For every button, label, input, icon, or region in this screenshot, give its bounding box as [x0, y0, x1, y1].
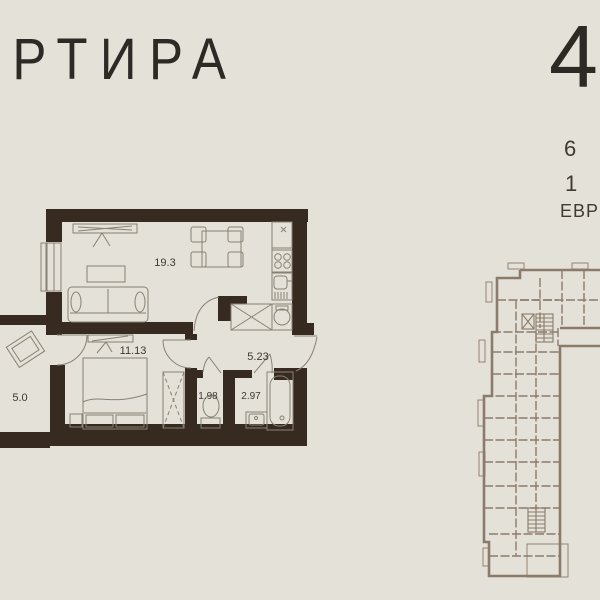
stair-core-lower — [528, 508, 545, 532]
wall-loggia-top — [0, 315, 62, 325]
fridge — [272, 222, 292, 248]
bed — [83, 358, 147, 429]
hall-closet — [231, 304, 292, 330]
wall-top — [46, 209, 308, 222]
building-interior-walls — [484, 270, 600, 556]
floor-plan-canvas: 19.3 11.13 5.23 5.0 1.98 2.97 — [0, 0, 600, 600]
door-entrance — [294, 336, 317, 371]
room-label-hallway: 5.23 — [247, 351, 268, 363]
sofa — [68, 287, 148, 322]
loggia-armchair — [6, 331, 44, 367]
dining-set — [191, 227, 243, 267]
coffee-table — [87, 266, 125, 282]
room-label-bedroom: 11.13 — [120, 345, 147, 357]
room-label-wc: 1.98 — [198, 391, 218, 402]
wall-wc-bath-divider — [223, 370, 235, 428]
wall-loggia-bedroom — [50, 365, 65, 432]
door-bedroom — [163, 340, 191, 368]
wall-wc-top — [185, 370, 203, 378]
wardrobe — [163, 372, 184, 428]
wall-living-bedroom — [55, 322, 193, 334]
kitchen-sink — [272, 273, 292, 300]
unit-outline — [478, 263, 588, 577]
wall-bedroom-hall-stub — [185, 334, 197, 340]
wall-right-kitchen — [292, 209, 307, 323]
room-label-living-kitchen: 19.3 — [154, 257, 175, 269]
building-outline — [484, 270, 600, 576]
door-wc — [203, 357, 221, 373]
apartment-plan: 19.3 11.13 5.23 5.0 1.98 2.97 — [0, 209, 317, 448]
wall-left-upper — [46, 209, 62, 242]
tv-console-living — [73, 224, 137, 247]
room-label-loggia: 5.0 — [12, 392, 27, 404]
wall-entry-stub — [292, 323, 314, 335]
stove — [272, 250, 292, 272]
wall-niche-left — [218, 296, 231, 321]
washing-machine — [274, 306, 290, 325]
stair-core-upper — [522, 314, 553, 342]
page: { "header": { "title_partial_letter": "А… — [0, 0, 600, 600]
room-label-bathroom: 2.97 — [241, 391, 261, 402]
wall-bottom-loggia — [0, 432, 50, 448]
building-key-plan — [478, 263, 600, 577]
door-living-hall — [194, 297, 219, 331]
window-living — [41, 243, 61, 291]
bathtub — [267, 372, 293, 430]
wall-bath-top-left — [235, 370, 252, 378]
